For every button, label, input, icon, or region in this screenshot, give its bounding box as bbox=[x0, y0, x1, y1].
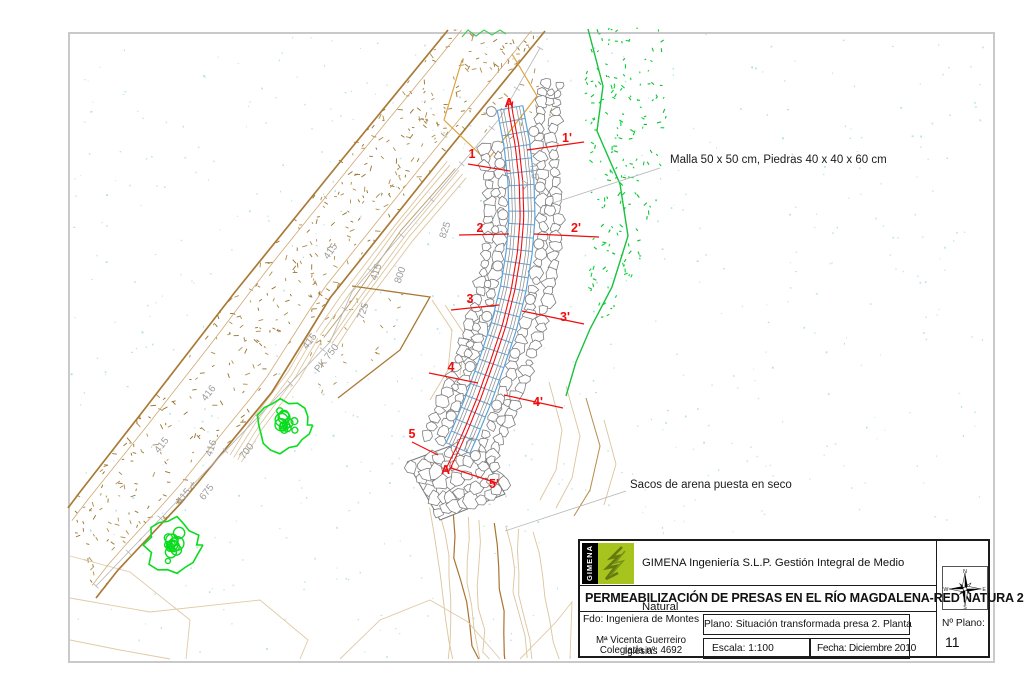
date-field: Fecha: Diciembre 2010 bbox=[810, 638, 910, 659]
plan-number-label: Nº Plano: bbox=[942, 618, 992, 629]
contour-label: 725 bbox=[356, 301, 372, 321]
section-marker-ap: A' bbox=[441, 463, 453, 477]
plan-description: Plano: Situación transformada presa 2. P… bbox=[703, 614, 910, 635]
section-marker-2p: 2' bbox=[571, 221, 581, 235]
contour-label: 825 bbox=[438, 220, 454, 240]
contour-label: PK 750 bbox=[313, 342, 342, 375]
section-marker-4: 4 bbox=[448, 360, 455, 374]
section-marker-1p: 1' bbox=[562, 131, 572, 145]
contour-label: 416 bbox=[204, 438, 220, 458]
section-marker-2: 2 bbox=[477, 221, 484, 235]
section-marker-a: A bbox=[504, 96, 513, 110]
contour-label: 800 bbox=[393, 265, 409, 285]
section-marker-5: 5 bbox=[409, 427, 416, 441]
contour-label: 415 bbox=[527, 162, 540, 180]
contour-label: 415 bbox=[153, 435, 172, 455]
vegetation-speckles bbox=[585, 28, 666, 317]
project-title: PERMEABILIZACIÓN DE PRESAS EN EL RÍO MAG… bbox=[585, 586, 935, 611]
signature-label: Fdo: Ingeniera de Montes bbox=[580, 614, 702, 625]
tree-symbols bbox=[143, 399, 313, 574]
section-marker-5p: 5' bbox=[489, 477, 499, 491]
contour-label: 416 bbox=[200, 383, 219, 403]
divider bbox=[580, 611, 936, 612]
contour-label: 700 bbox=[238, 441, 257, 461]
annotation-sacos: Sacos de arena puesta en seco bbox=[630, 479, 792, 491]
section-marker-1: 1 bbox=[469, 147, 476, 161]
gimena-logo-text: GIMENA bbox=[582, 543, 598, 584]
contour-label: 415 bbox=[369, 262, 385, 282]
contour-label: 415 bbox=[322, 241, 341, 261]
company-name: GIMENA Ingeniería S.L.P. Gestión Integra… bbox=[642, 541, 932, 585]
title-block: GIMENA GIMENA Ingeniería S.L.P. Gestión … bbox=[578, 539, 990, 658]
compass-rose-icon: N S E W bbox=[943, 567, 987, 609]
plan-number-value: 11 bbox=[945, 634, 985, 650]
section-marker-3: 3 bbox=[467, 292, 474, 306]
compass-north-label: N bbox=[963, 569, 967, 575]
compass-box: N S E W bbox=[942, 566, 988, 610]
contour-label: 675 bbox=[198, 482, 217, 502]
compass-east-label: E bbox=[982, 587, 986, 593]
compass-west-label: W bbox=[943, 587, 948, 593]
gimena-logo-icon bbox=[598, 543, 634, 584]
compass-south-label: S bbox=[963, 605, 967, 609]
scale-field: Escala: 1:100 bbox=[703, 638, 810, 659]
section-marker-4p: 4' bbox=[533, 395, 543, 409]
tree-logo-icon bbox=[598, 543, 634, 584]
section-marker-3p: 3' bbox=[560, 310, 570, 324]
drawing-sheet: 415415825800725415PK 7504164154166754157… bbox=[0, 0, 1024, 692]
divider bbox=[936, 541, 937, 656]
annotation-malla: Malla 50 x 50 cm, Piedras 40 x 40 x 60 c… bbox=[670, 154, 887, 166]
engineer-registration: Colegiada nº: 4692 bbox=[580, 645, 702, 656]
